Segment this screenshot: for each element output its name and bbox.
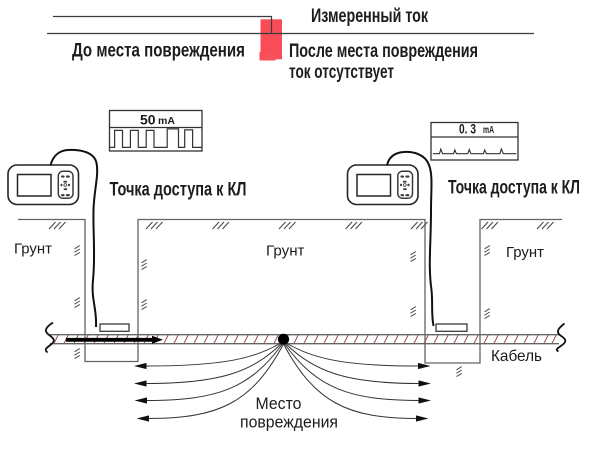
svg-text:Грунт: Грунт [266,243,305,260]
svg-text:Измеренный ток: Измеренный ток [311,6,428,27]
svg-text:После места повреждения: После места повреждения [289,41,478,62]
svg-text:0. 3: 0. 3 [459,121,476,137]
svg-text:Место: Место [256,394,302,413]
svg-text:Грунт: Грунт [14,241,52,258]
svg-text:повреждения: повреждения [240,413,338,432]
svg-text:Грунт: Грунт [506,244,544,261]
svg-text:50: 50 [140,112,156,128]
svg-text:Точка доступа к КЛ: Точка доступа к КЛ [448,177,580,198]
svg-text:ток отсутствует: ток отсутствует [289,62,394,83]
svg-text:Кабель: Кабель [491,348,542,365]
svg-text:До места повреждения: До места повреждения [72,41,245,62]
svg-text:mA: mA [483,124,494,136]
svg-text:mA: mA [158,115,175,127]
svg-text:Точка доступа к КЛ: Точка доступа к КЛ [110,179,247,200]
